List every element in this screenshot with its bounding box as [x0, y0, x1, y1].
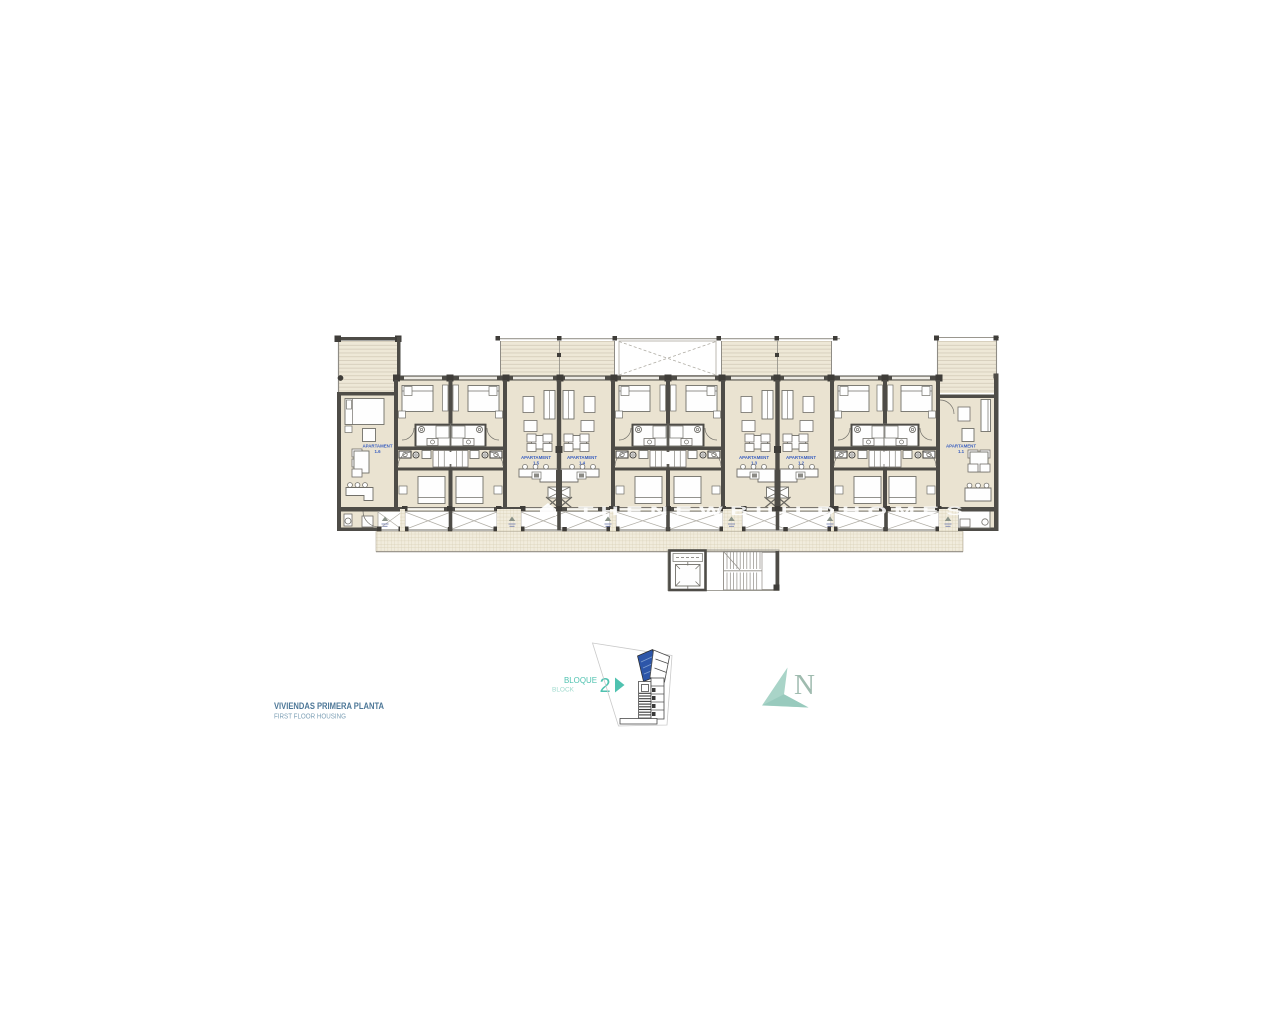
svg-text:FIRST FLOOR HOUSING: FIRST FLOOR HOUSING	[274, 712, 346, 721]
svg-text:APARTAMENT: APARTAMENT	[567, 455, 597, 460]
svg-text:APARTAMENT: APARTAMENT	[521, 455, 551, 460]
svg-text:1.6: 1.6	[374, 449, 381, 454]
svg-text:APARTAMENT: APARTAMENT	[362, 443, 392, 448]
svg-text:APARTAMENT: APARTAMENT	[946, 443, 976, 448]
svg-text:1.1: 1.1	[958, 449, 965, 454]
svg-text:BLOQUE: BLOQUE	[564, 676, 597, 685]
svg-text:VIVIENDAS PRIMERA PLANTA: VIVIENDAS PRIMERA PLANTA	[274, 701, 384, 711]
svg-text:2: 2	[599, 675, 610, 697]
svg-text:APARTAMENT: APARTAMENT	[739, 455, 769, 460]
svg-text:T H E N E W B U I L D H O M: T H E N E W B U I L D H O M E S	[578, 506, 964, 518]
svg-text:APARTAMENT: APARTAMENT	[786, 455, 816, 460]
svg-text:BLOCK: BLOCK	[552, 688, 574, 694]
svg-text:N: N	[794, 669, 815, 701]
